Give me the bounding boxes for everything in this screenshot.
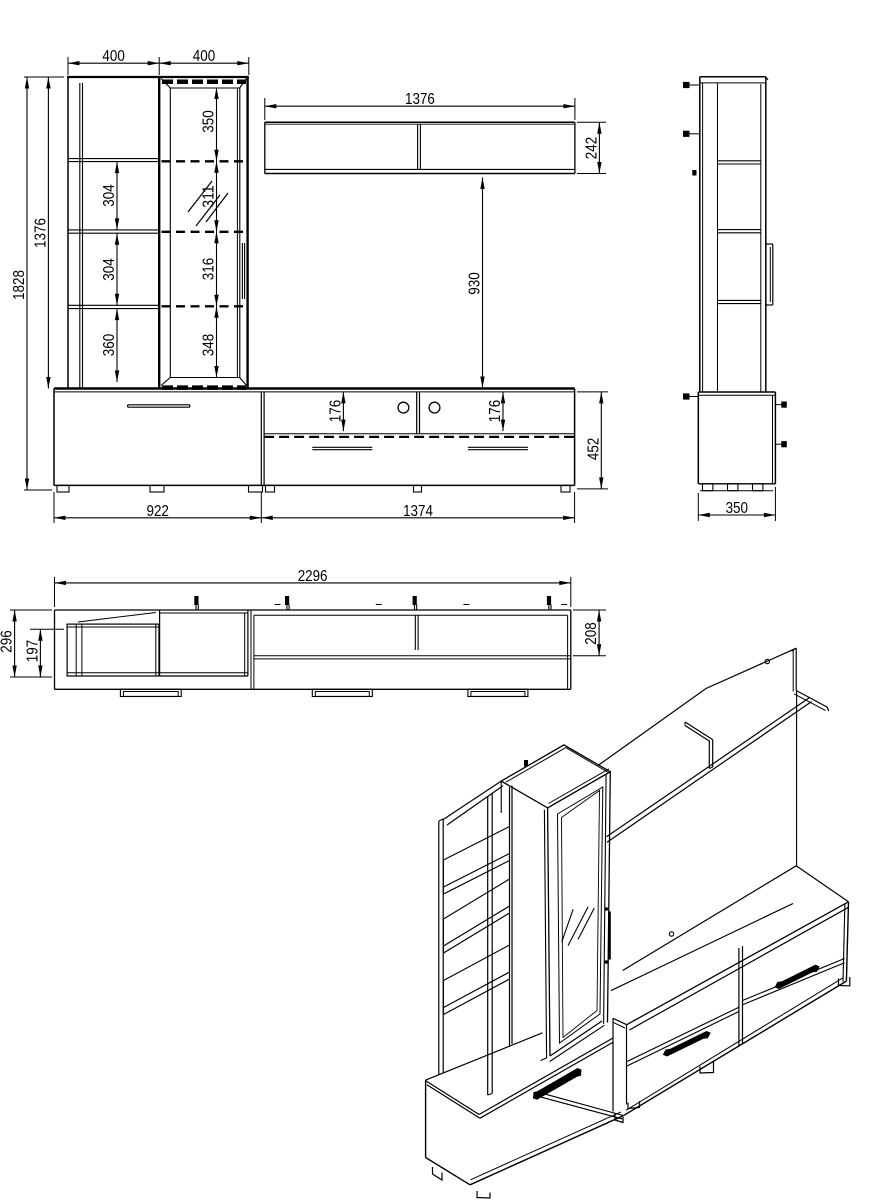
svg-text:304: 304: [101, 184, 118, 206]
svg-text:208: 208: [583, 622, 600, 644]
svg-text:930: 930: [467, 272, 484, 294]
svg-text:176: 176: [487, 400, 504, 422]
svg-text:350: 350: [201, 110, 218, 132]
svg-text:1376: 1376: [32, 218, 49, 248]
svg-text:197: 197: [24, 640, 41, 662]
svg-text:316: 316: [201, 258, 218, 280]
svg-text:452: 452: [585, 438, 602, 460]
svg-text:1828: 1828: [11, 270, 28, 300]
svg-text:1374: 1374: [403, 503, 433, 520]
svg-text:2296: 2296: [298, 568, 328, 585]
svg-text:348: 348: [201, 334, 218, 356]
svg-text:296: 296: [0, 630, 16, 652]
svg-text:176: 176: [327, 400, 344, 422]
svg-text:400: 400: [102, 48, 124, 65]
svg-text:304: 304: [101, 258, 118, 280]
svg-text:922: 922: [147, 503, 169, 520]
svg-text:1376: 1376: [405, 91, 435, 108]
svg-text:242: 242: [583, 137, 600, 159]
svg-text:311: 311: [201, 185, 218, 207]
svg-text:400: 400: [193, 48, 215, 65]
svg-text:350: 350: [726, 500, 748, 517]
svg-text:360: 360: [101, 334, 118, 356]
